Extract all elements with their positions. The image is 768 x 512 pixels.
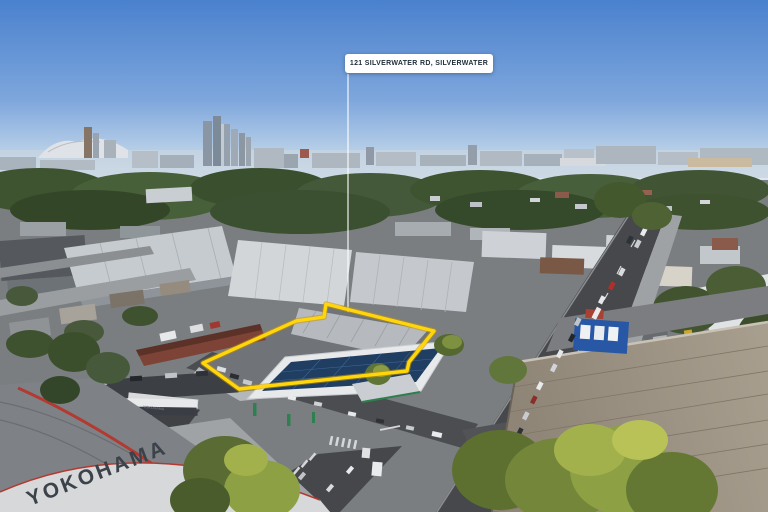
address-label: 121 SILVERWATER RD, SILVERWATER [345,54,493,73]
aerial-photo-svg: YOKOHAMA YOKOHAMA [0,0,768,512]
address-label-text: 121 SILVERWATER RD, SILVERWATER [350,60,488,67]
aerial-photo: YOKOHAMA YOKOHAMA [0,0,768,512]
